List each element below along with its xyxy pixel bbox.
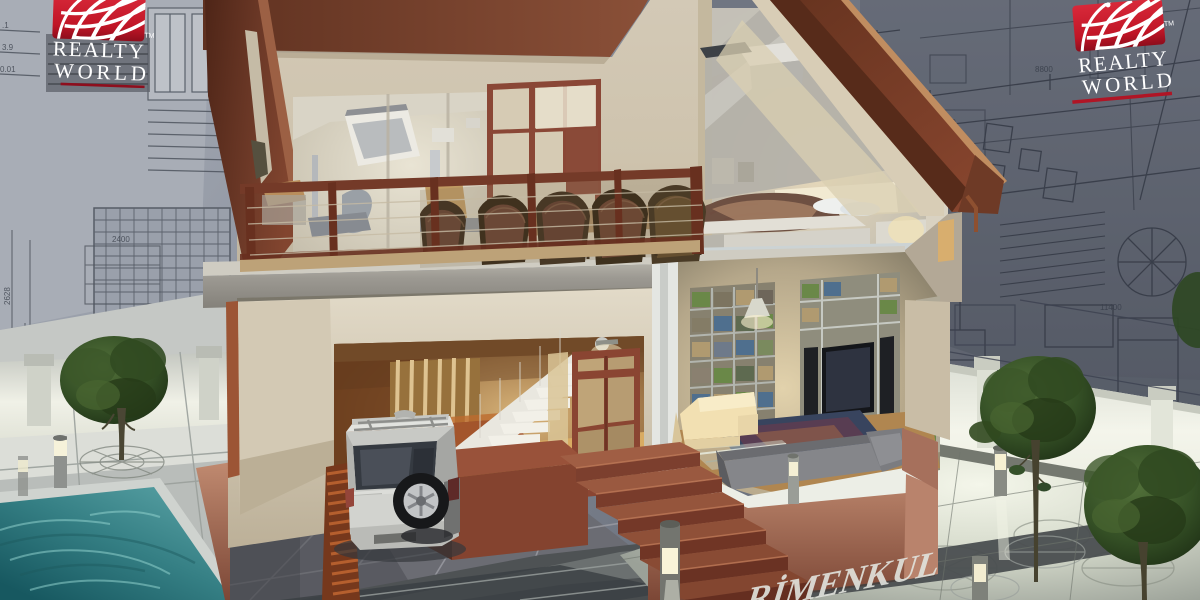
svg-text:11400: 11400 — [1100, 303, 1122, 312]
svg-text:TM: TM — [144, 33, 155, 40]
svg-text:0.01: 0.01 — [0, 65, 16, 74]
svg-text:3.9: 3.9 — [2, 43, 14, 52]
svg-text:TM: TM — [1164, 20, 1175, 28]
svg-text:WORLD: WORLD — [54, 58, 147, 85]
svg-text:8800: 8800 — [1035, 65, 1053, 74]
svg-text:2400: 2400 — [112, 235, 130, 244]
svg-text:.1: .1 — [2, 21, 9, 30]
svg-text:2628: 2628 — [3, 287, 12, 305]
